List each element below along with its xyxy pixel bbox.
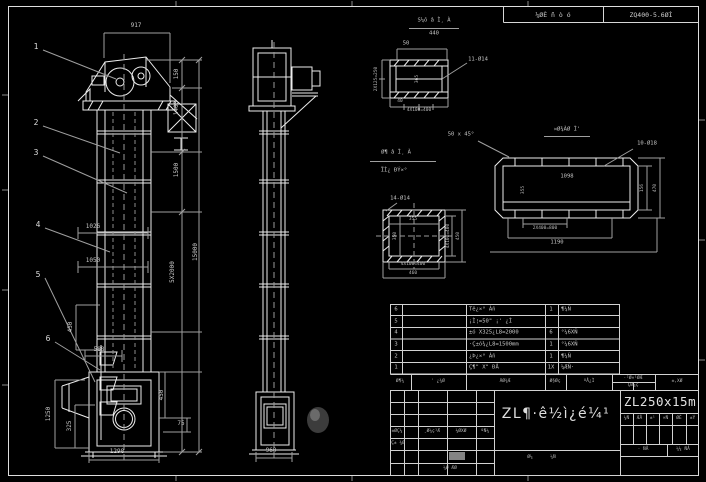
- bom-row-mat: °¼6XÑ: [561, 331, 578, 337]
- bom-row-name: Ç¶" X" ÐÅ: [469, 365, 499, 371]
- detail-b-centerlines: [376, 203, 452, 269]
- detail-c-dims: [478, 137, 665, 253]
- sign-cell: Ç± ¾Ø: [391, 442, 405, 447]
- bom-row-name: ·Ç±ó¾¿L8=1500mm: [469, 342, 519, 348]
- dim-917: 917: [131, 23, 142, 29]
- detail-b-bottom-out: 460: [409, 272, 417, 277]
- detail-c-title: ¤Ø¾ÀØ Ì': [554, 127, 581, 133]
- detail-b-right-in: 4X100=400: [447, 224, 452, 248]
- bom-row-mat: ¼ÆÑ·: [561, 365, 574, 371]
- dim-150: 150: [174, 69, 180, 80]
- dim-1298: 1298: [110, 449, 124, 455]
- detail-a-dim-left: 2X125=250: [375, 67, 380, 91]
- revision-cell: ØÈ: [676, 417, 681, 422]
- revision-cell: ×Ñ: [663, 417, 668, 422]
- dim-1400: 1400: [174, 101, 180, 115]
- bom-header-note: ±,XØ: [672, 380, 683, 385]
- stage-label: · ÑÅ: [638, 448, 649, 453]
- revision-cell: ÆÅ: [637, 417, 642, 422]
- dim-1050: 1050: [86, 258, 100, 264]
- dim-5x2000: 5X2000: [170, 261, 176, 283]
- balloon-5: 5: [36, 271, 41, 279]
- detail-a-title: Ѕ¼ô â Ì¸ À: [417, 18, 450, 24]
- dim-boot-450: 450: [159, 390, 165, 401]
- dim-1026: 1026: [86, 224, 100, 230]
- revision-cell: ±¹: [650, 417, 655, 422]
- balloon-3: 3: [34, 149, 39, 157]
- balloon-1: 1: [34, 43, 39, 51]
- bom-row-no: 6: [394, 307, 397, 313]
- bom-row-qty: 1X: [548, 365, 555, 371]
- detail-c-inner-w: 1098: [560, 174, 573, 180]
- header-material-cell: ¼ØÈ ñ ò ó: [535, 12, 570, 19]
- bom-header-weight-top: ·²Ø×¹ØÆ: [624, 376, 643, 381]
- detail-c-inner-h: 355: [522, 186, 527, 194]
- side-view: [249, 40, 320, 454]
- detail-b-bottom-in: 4X100=400: [401, 263, 425, 268]
- bom-row-name: ¡Ì¦=50" ¡' ¿Ì: [469, 319, 512, 325]
- bom-header-code: ' ¿¾Ø: [431, 380, 445, 385]
- sign-cell: ¼ØXØ: [456, 430, 467, 435]
- detail-a-holes-label: 11-Ø14: [468, 57, 488, 63]
- detail-c: [495, 158, 638, 218]
- front-view-dims: [43, 33, 202, 463]
- dim-960: 960: [266, 448, 277, 454]
- detail-a-dim-40: 40: [397, 100, 402, 105]
- detail-c-bottom-mid: 1190: [550, 240, 563, 246]
- bom-row-qty: 1: [549, 354, 552, 360]
- dim-15000: 15000: [193, 243, 199, 261]
- detail-c-right-out: 470: [654, 184, 659, 192]
- bom-row-no: 5: [394, 319, 397, 325]
- balloon-4: 4: [36, 221, 41, 229]
- sign-cell: ºÑ¼: [481, 430, 489, 435]
- bom-row-qty: 1: [549, 307, 552, 313]
- revision-cell: ±Ý: [690, 417, 695, 422]
- detail-b-holes-label: 14-Ø14: [390, 196, 410, 202]
- bom-header-mat: ºÅ¿Ì: [584, 380, 595, 385]
- revision-cell: ¼Ñ: [624, 417, 629, 422]
- dim-1500: 1500: [174, 163, 180, 177]
- bom-row-mat: °¼6XÑ: [561, 342, 578, 348]
- bom-row-qty: 1: [549, 342, 552, 348]
- bom-row-name: Tê¿×° Àñ: [469, 307, 496, 313]
- dim-1250: 1250: [46, 407, 52, 421]
- bom-row-name: ¿Þ¿×° Àñ: [469, 354, 496, 360]
- balloon-2: 2: [34, 119, 39, 127]
- bom-row-qty: 6: [549, 331, 552, 337]
- detail-b-inner-h: 350: [394, 232, 399, 240]
- product-title: ZL¶·ê½ì¿é¼¹: [502, 407, 611, 421]
- bom-row-no: 3: [394, 342, 397, 348]
- bom-row-mat: ¶¼Ñ: [561, 307, 571, 313]
- bom-row-no: 2: [394, 354, 397, 360]
- dim-588: 588: [94, 347, 105, 353]
- bom-row-no: 1: [394, 365, 397, 371]
- bom-header-name: ÃØ¾Æ: [500, 380, 511, 385]
- dim-75: 75: [177, 421, 184, 427]
- detail-b-title-1: Ø¶ â Ì¸ À: [381, 150, 411, 156]
- front-view-chain: [113, 112, 135, 370]
- sign-cell: ¼Ø ÆØ: [443, 467, 457, 472]
- detail-a-dim-50: 50: [403, 41, 410, 47]
- detail-b-title-2: ÏÌ¿ ÐÝ×°: [381, 168, 408, 174]
- balloon-6: 6: [46, 335, 51, 343]
- bom-header-qty: Ø§Øç: [550, 380, 561, 385]
- detail-c-chamfer-label: 50 x 45°: [448, 132, 475, 138]
- bom-row-name: ±ó X325¿L8=2000: [469, 331, 519, 337]
- sheet-count: Ø¼: [527, 456, 532, 461]
- detail-b-inner-w: 355: [409, 218, 417, 223]
- detail-b-right-out: 450: [457, 232, 462, 240]
- sign-cell: ¸Ø¼ç¹Æ: [424, 430, 440, 435]
- model-number: ZL250x15m: [624, 396, 696, 409]
- dim-bucket-450: 450: [68, 322, 74, 333]
- bom-header-no: Ø¶¼: [396, 380, 404, 385]
- detail-c-bottom-in: 2X400=800: [533, 227, 557, 232]
- detail-c-right-in: 156: [641, 184, 646, 192]
- detail-a-scale: 440: [429, 31, 439, 37]
- front-view: [62, 57, 197, 458]
- scale-label: ¼¼ ÑÅ: [676, 448, 690, 453]
- detail-a-dim-bottom: 4X100=400: [407, 109, 431, 114]
- signature-blob: [449, 452, 465, 460]
- bom-row-mat: ¶¼Ñ: [561, 354, 571, 360]
- bom-row-no: 4: [394, 331, 397, 337]
- sign-cell: ±ØÇ¼: [392, 430, 403, 435]
- detail-c-holes-label: 10-Ø18: [637, 141, 657, 147]
- detail-a-dim-mid: 365: [416, 75, 421, 83]
- dim-325: 325: [67, 421, 73, 432]
- bom-header-weight-bottom: ÇØ¼ç: [628, 384, 639, 389]
- header-model-cell: ZQ400-5.6ØÌ: [629, 12, 672, 19]
- cad-drawing-canvas[interactable]: ¼ØÈ ñ ò ó ZQ400-5.6ØÌ 1 2 3 4 5 6 917 15…: [0, 0, 706, 482]
- render-smudge: [307, 407, 329, 433]
- sheet-number: ¼Ñ: [550, 456, 555, 461]
- bom-grid: [390, 304, 699, 391]
